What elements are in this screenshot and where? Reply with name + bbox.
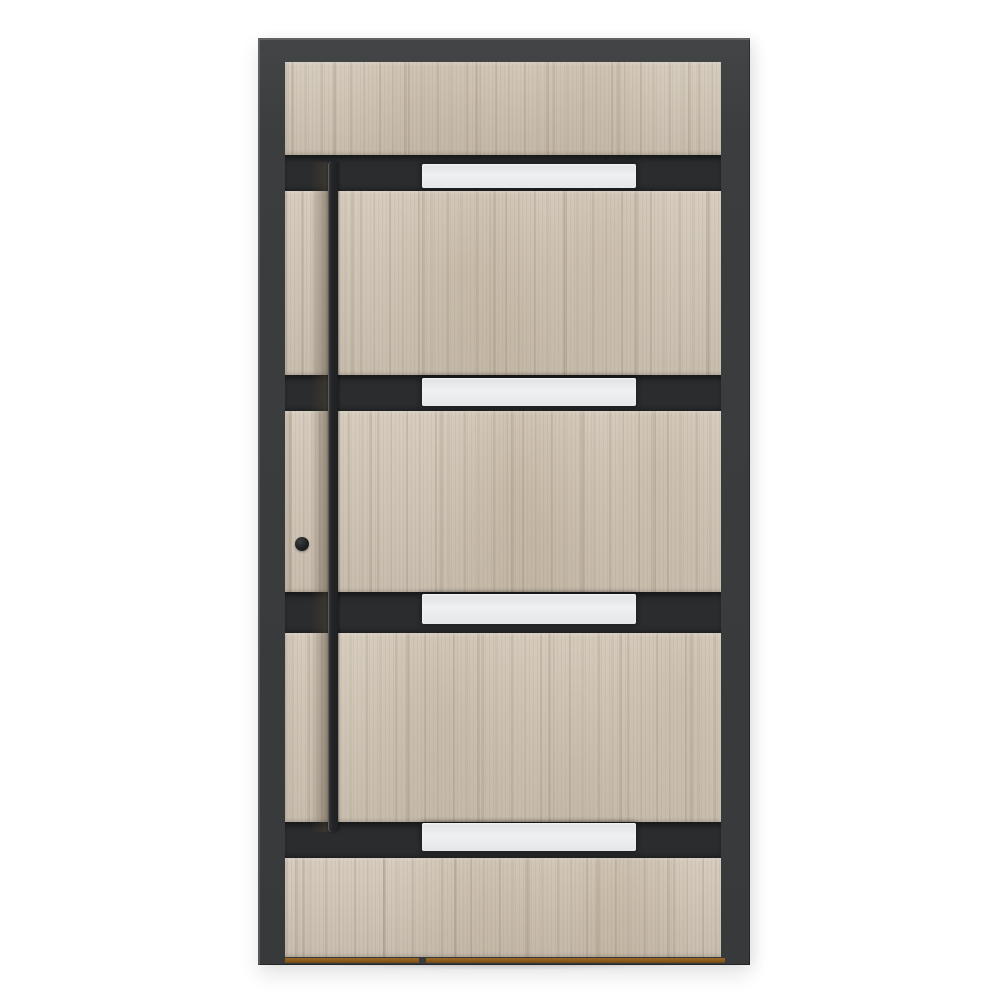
wood-panel-4 <box>285 633 721 822</box>
glass-slit-3 <box>422 594 636 624</box>
pull-handle <box>328 162 338 832</box>
glass-slit-2 <box>422 378 636 406</box>
glazing-band-2 <box>285 375 721 411</box>
wood-panel-3 <box>285 411 721 592</box>
product-image <box>0 0 1000 1000</box>
wood-panel-2 <box>285 191 721 375</box>
entry-door <box>258 38 750 965</box>
glazing-band-4 <box>285 822 721 858</box>
wood-panel-1 <box>285 62 721 155</box>
threshold-seal-mark <box>419 958 426 963</box>
glazing-band-1 <box>285 155 721 191</box>
glass-slit-1 <box>422 164 636 188</box>
lock-cylinder <box>295 537 309 551</box>
glazing-band-3 <box>285 592 721 633</box>
wood-panel-5 <box>285 858 721 957</box>
threshold-sill <box>285 958 725 963</box>
glass-slit-4 <box>422 823 636 851</box>
